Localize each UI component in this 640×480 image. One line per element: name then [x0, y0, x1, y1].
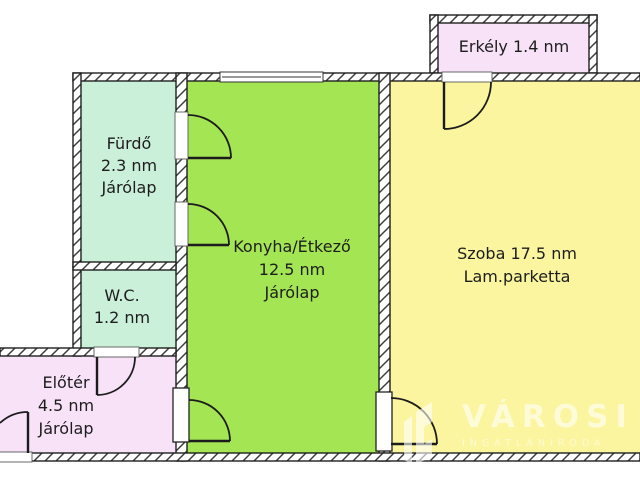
wall-furdo-wc — [73, 262, 176, 270]
room-label-wc: W.C. 1.2 nm — [94, 285, 150, 329]
watermark-text: VÁROSI INGATLANIRODA — [462, 402, 634, 449]
konyha-area: 12.5 nm — [233, 258, 351, 281]
eloter-floor: Járólap — [38, 417, 94, 440]
furdo-area: 2.3 nm — [101, 155, 157, 177]
konyha-floor: Járólap — [233, 281, 351, 304]
room-label-furdo: Fürdő 2.3 nm Járólap — [101, 133, 157, 199]
watermark-subtitle: INGATLANIRODA — [462, 438, 634, 449]
furdo-name: Fürdő — [101, 133, 157, 155]
szoba-name-area: Szoba 17.5 nm — [457, 242, 577, 265]
konyha-name: Konyha/Étkező — [233, 235, 351, 258]
furdo-door-opening — [175, 112, 188, 159]
wc-name: W.C. — [94, 285, 150, 307]
room-label-szoba: Szoba 17.5 nm Lam.parketta — [457, 242, 577, 288]
erkely-name-area: Erkély 1.4 nm — [459, 36, 569, 58]
wall-balcony-left — [430, 15, 438, 73]
wc-area: 1.2 nm — [94, 307, 150, 329]
room-label-erkely: Erkély 1.4 nm — [459, 36, 569, 58]
wall-left — [73, 73, 81, 356]
varosi-logo-icon — [404, 402, 448, 464]
entrance-door-opening — [0, 452, 32, 462]
floor-plan: Erkély 1.4 nm Fürdő 2.3 nm Járólap W.C. … — [0, 0, 640, 480]
furdo-floor: Járólap — [101, 177, 157, 199]
furdo-door2-opening — [175, 202, 188, 246]
szoba-floor: Lam.parketta — [457, 265, 577, 288]
eloter-name: Előtér — [38, 371, 94, 394]
wall-top — [73, 73, 640, 81]
eloter-konyha-door-frame — [173, 388, 189, 442]
wall-wc-eloter — [0, 348, 176, 356]
balcony-door-opening — [442, 72, 492, 82]
room-label-eloter: Előtér 4.5 nm Járólap — [38, 371, 94, 440]
konyha-szoba-door-frame — [376, 392, 392, 451]
wall-balcony-right — [589, 15, 597, 73]
watermark-brand: VÁROSI — [462, 402, 634, 432]
eloter-area: 4.5 nm — [38, 394, 94, 417]
room-label-konyha: Konyha/Étkező 12.5 nm Járólap — [233, 235, 351, 304]
wall-balcony-top — [430, 15, 597, 23]
wc-door-opening — [94, 347, 139, 357]
watermark: VÁROSI INGATLANIRODA — [404, 402, 634, 464]
